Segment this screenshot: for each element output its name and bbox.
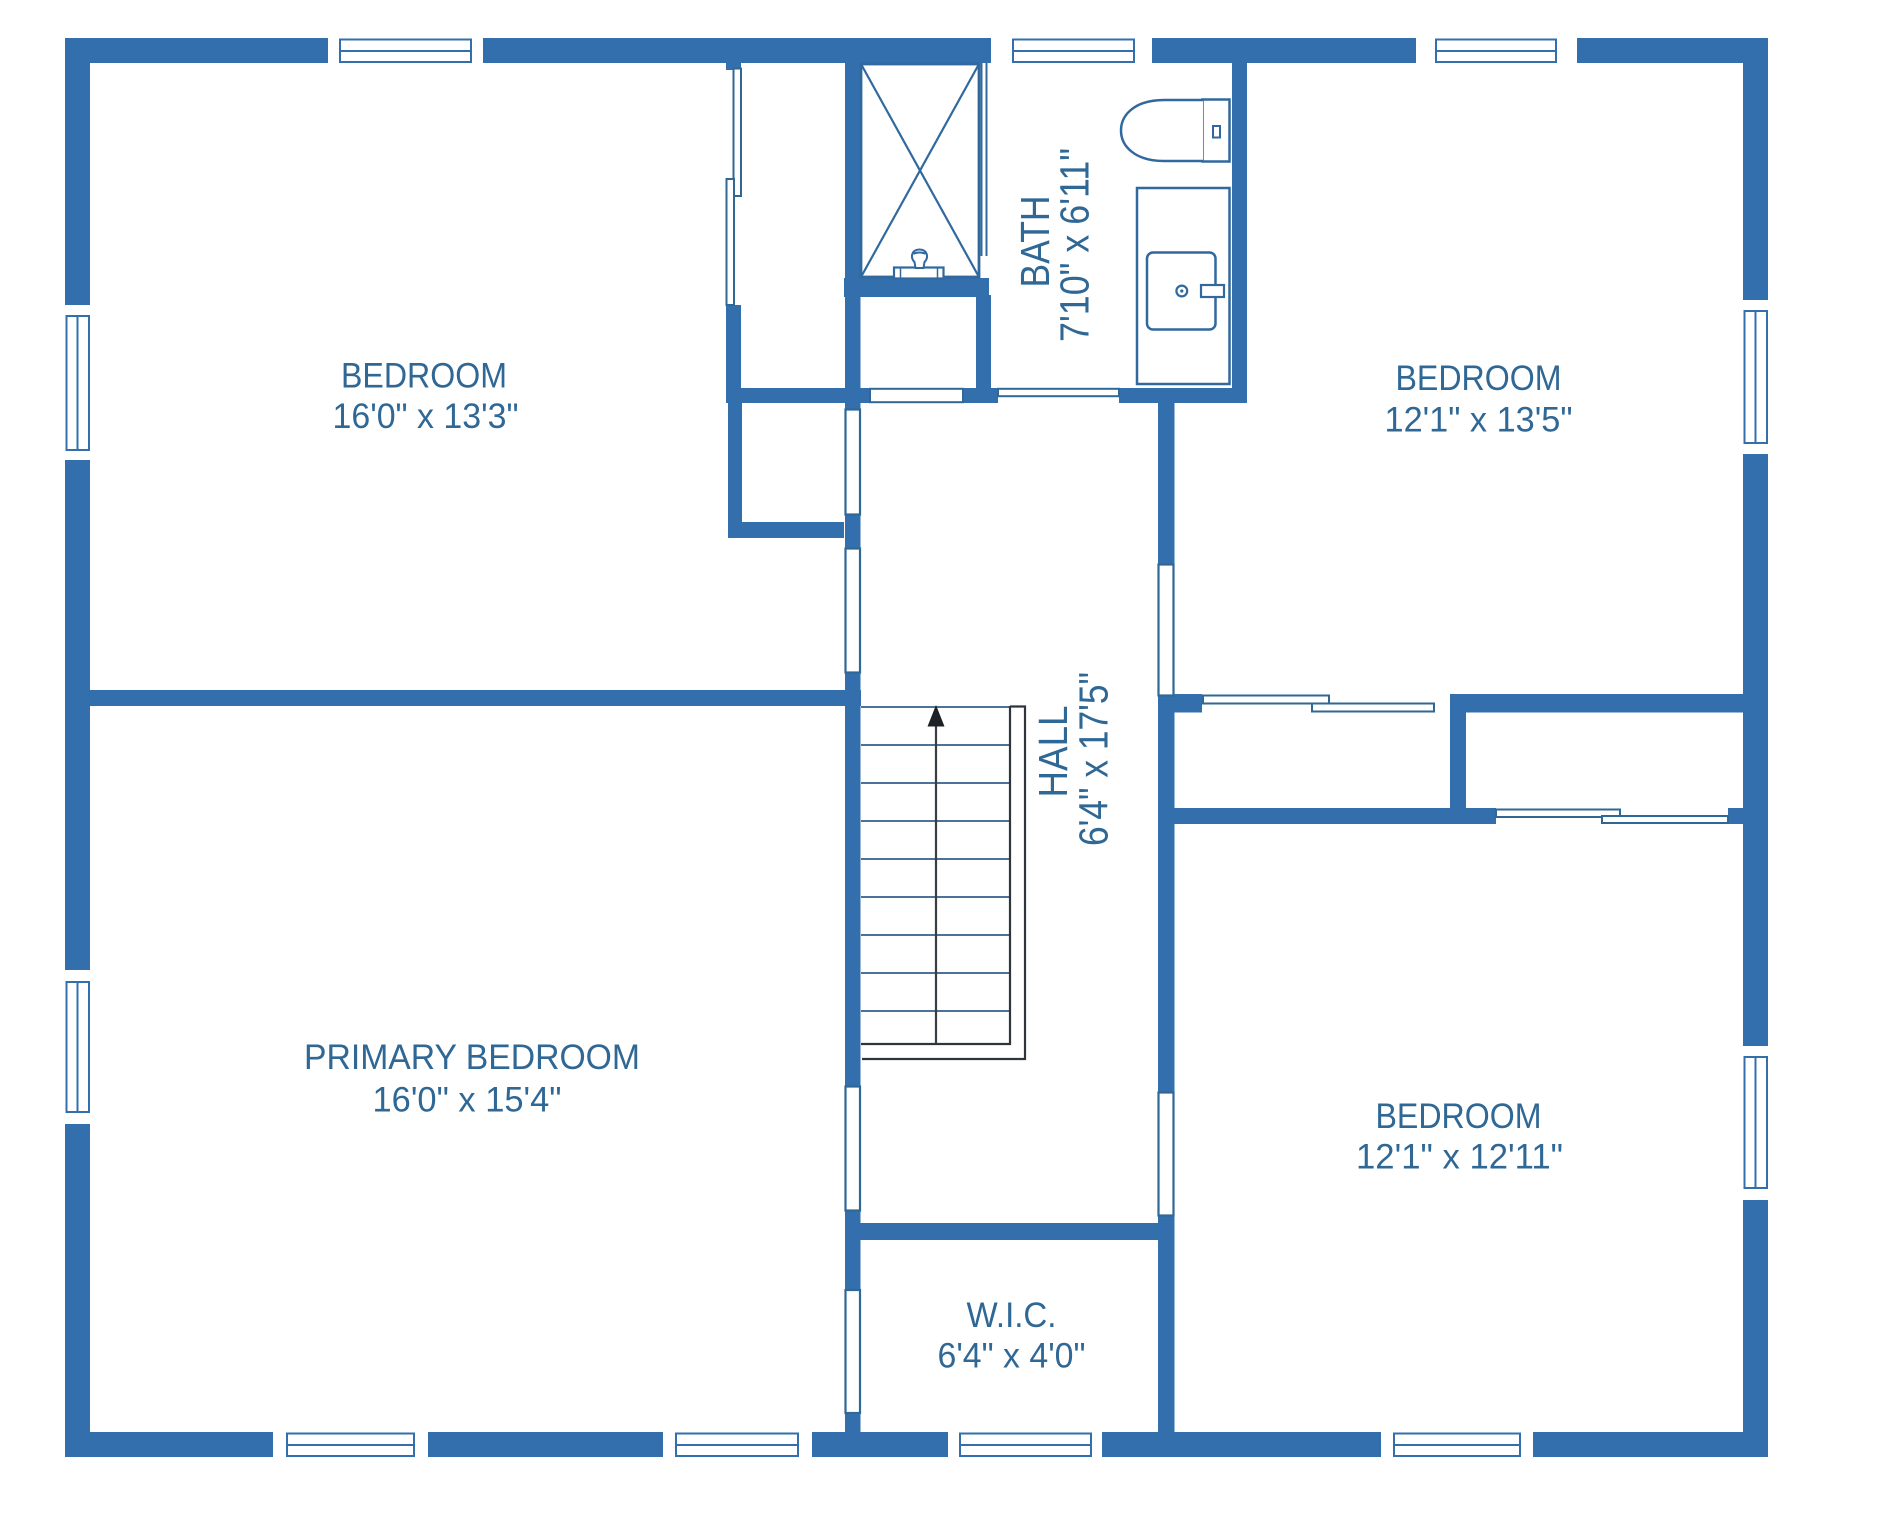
svg-text:16'0" x 15'4": 16'0" x 15'4" — [373, 1081, 562, 1120]
svg-text:BEDROOM: BEDROOM — [341, 357, 507, 396]
svg-text:12'1" x 13'5": 12'1" x 13'5" — [1385, 401, 1573, 440]
svg-text:16'0" x 13'3": 16'0" x 13'3" — [333, 397, 519, 436]
svg-text:6'4" x 17'5": 6'4" x 17'5" — [1071, 672, 1117, 846]
svg-text:W.I.C.: W.I.C. — [967, 1296, 1057, 1335]
svg-text:7'10" x 6'11": 7'10" x 6'11" — [1052, 148, 1098, 342]
svg-text:12'1" x 12'11": 12'1" x 12'11" — [1356, 1138, 1563, 1177]
svg-text:PRIMARY BEDROOM: PRIMARY BEDROOM — [304, 1038, 640, 1077]
svg-text:BEDROOM: BEDROOM — [1376, 1097, 1542, 1136]
svg-text:6'4" x 4'0": 6'4" x 4'0" — [938, 1337, 1086, 1376]
svg-text:HALL: HALL — [1030, 706, 1076, 798]
svg-text:BEDROOM: BEDROOM — [1396, 359, 1562, 398]
